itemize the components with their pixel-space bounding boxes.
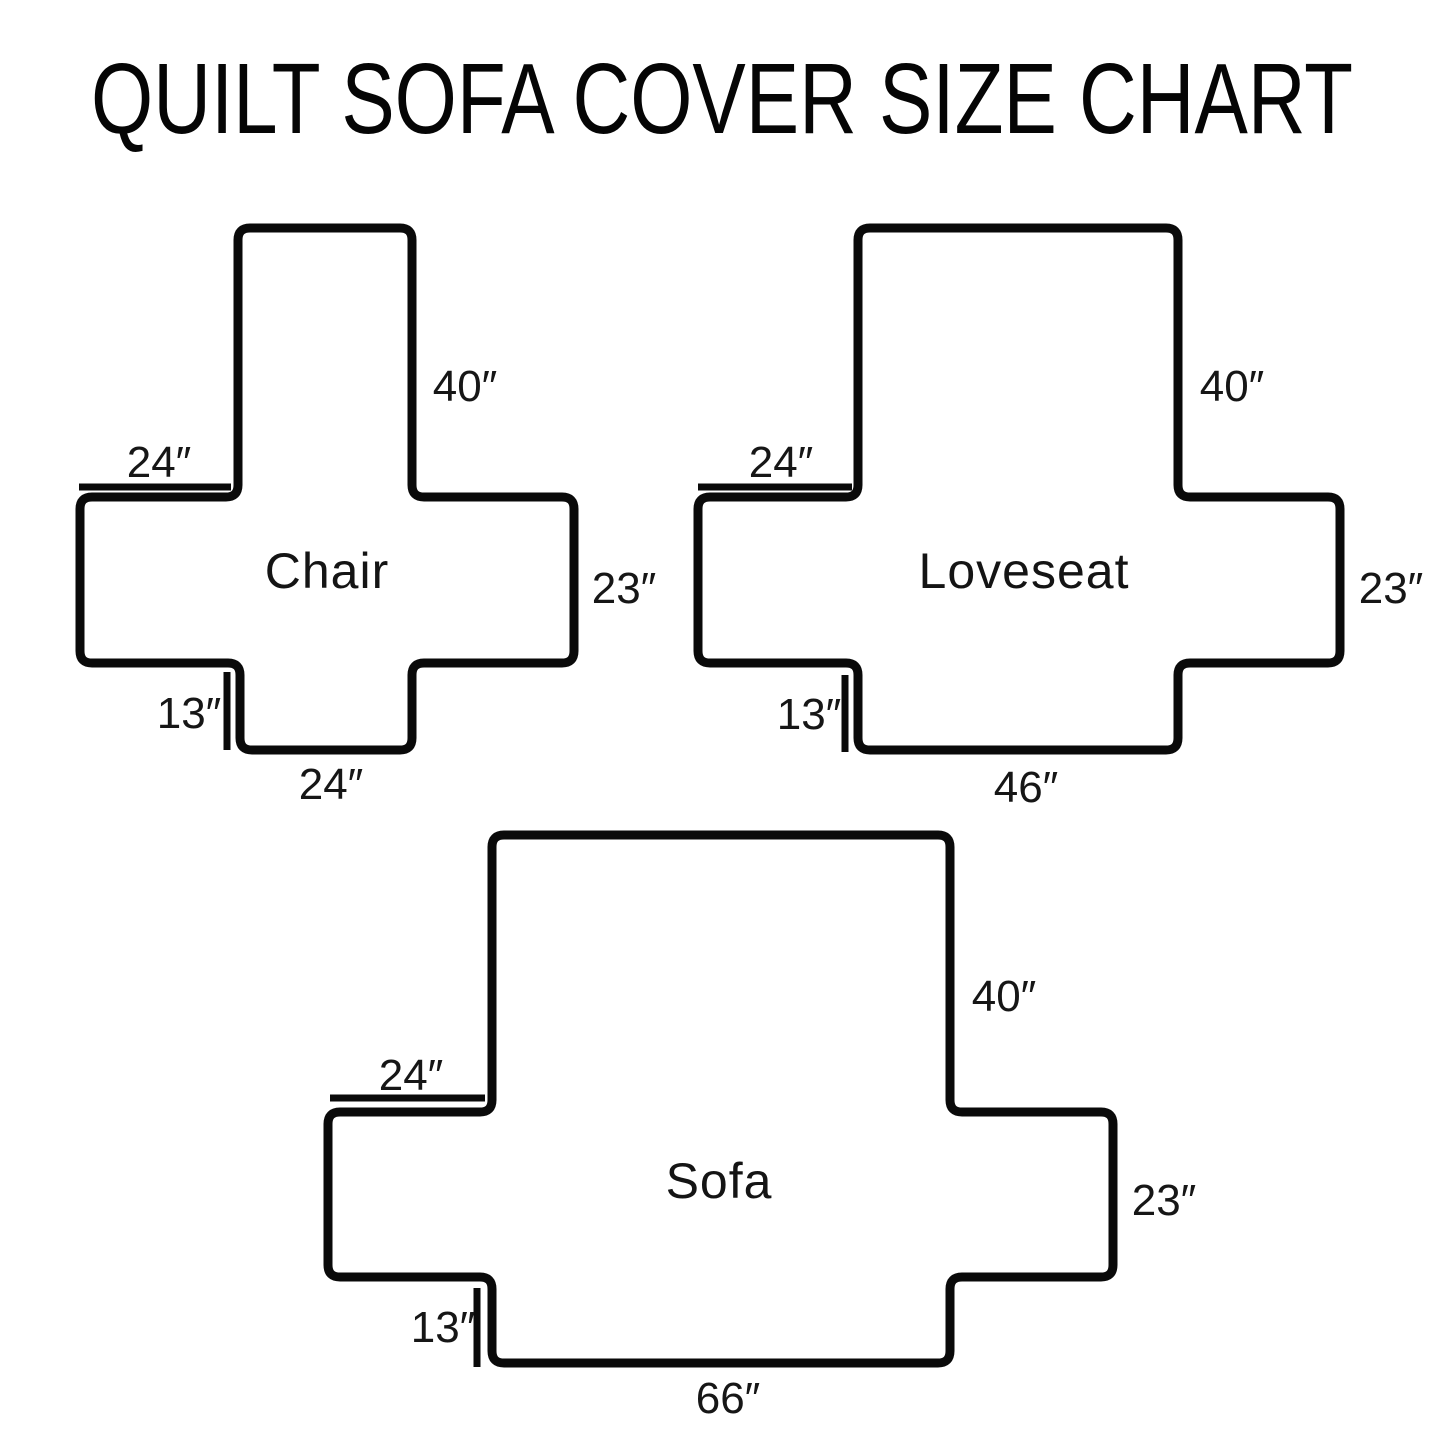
chair-arm-top-width-label: 24″ bbox=[127, 438, 192, 487]
sofa-diagram: 40″ 24″ Sofa 23″ 13″ 66″ bbox=[328, 835, 1196, 1423]
sofa-arm-side-height-label: 23″ bbox=[1132, 1176, 1197, 1225]
loveseat-arm-top-width-label: 24″ bbox=[749, 438, 814, 487]
chair-arm-side-height-label: 23″ bbox=[592, 564, 657, 613]
loveseat-diagram: 40″ 24″ Loveseat 23″ 13″ 46″ bbox=[698, 228, 1423, 812]
sofa-seat-bottom-width-label: 66″ bbox=[696, 1374, 761, 1423]
sofa-front-skirt-height-label: 13″ bbox=[411, 1303, 476, 1352]
sofa-back-height-label: 40″ bbox=[972, 972, 1037, 1021]
page-title: QUILT SOFA COVER SIZE CHART bbox=[91, 43, 1353, 155]
loveseat-seat-bottom-width-label: 46″ bbox=[994, 763, 1059, 812]
loveseat-front-skirt-height-label: 13″ bbox=[777, 690, 842, 739]
size-chart-page: QUILT SOFA COVER SIZE CHART 40″ 24″ Chai… bbox=[0, 0, 1445, 1435]
chair-name-label: Chair bbox=[265, 543, 389, 599]
loveseat-arm-side-height-label: 23″ bbox=[1359, 564, 1424, 613]
chair-back-height-label: 40″ bbox=[433, 362, 498, 411]
chair-seat-bottom-width-label: 24″ bbox=[299, 760, 364, 809]
chair-front-skirt-height-label: 13″ bbox=[157, 689, 222, 738]
loveseat-back-height-label: 40″ bbox=[1200, 362, 1265, 411]
chair-diagram: 40″ 24″ Chair 23″ 13″ 24″ bbox=[79, 228, 656, 809]
size-chart-canvas: QUILT SOFA COVER SIZE CHART 40″ 24″ Chai… bbox=[0, 0, 1445, 1435]
sofa-arm-top-width-label: 24″ bbox=[379, 1051, 444, 1100]
sofa-name-label: Sofa bbox=[666, 1153, 773, 1209]
loveseat-name-label: Loveseat bbox=[919, 543, 1130, 599]
